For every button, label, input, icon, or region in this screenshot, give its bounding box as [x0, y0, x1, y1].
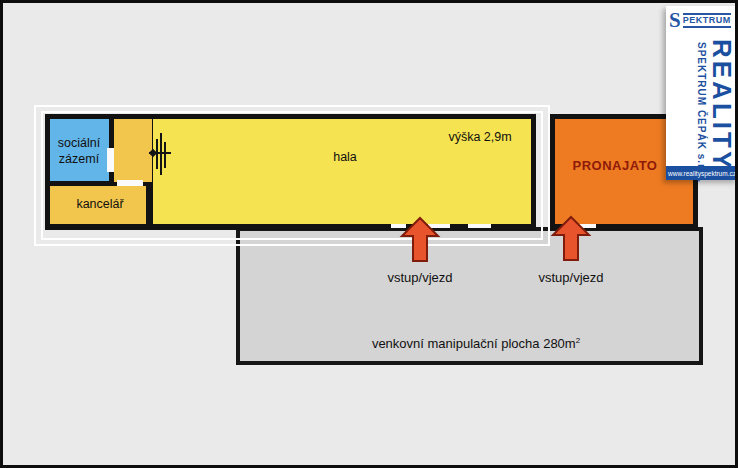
logo-company-text: SPEKTRUM ČEPÁK s.r.o.	[696, 42, 706, 183]
agency-logo-mini: S PEKTRUM	[669, 11, 731, 30]
entrance-label-1: vstup/vjezd	[387, 270, 452, 286]
logo-rule-bottom	[683, 26, 731, 28]
annotation-frame-inner	[41, 111, 543, 240]
entrance-label-2: vstup/vjezd	[538, 270, 603, 286]
outdoor-area-label-sup: 2	[576, 336, 580, 345]
logo-reality-text: REALITY	[709, 39, 735, 171]
outdoor-area-label: venkovní manipulační plocha 280m2	[372, 336, 580, 353]
logo-s-icon: S	[669, 11, 681, 30]
agency-logo: S PEKTRUM REALITY SPEKTRUM ČEPÁK s.r.o. …	[666, 6, 738, 180]
logo-mini-column: PEKTRUM	[683, 12, 731, 30]
entrance-arrow-icon	[549, 215, 593, 262]
floor-plan-image: venkovní manipulační plocha 280m2 sociál…	[0, 0, 738, 468]
logo-website-text: www.realityspektrum.cz	[668, 170, 736, 177]
logo-mini-word: PEKTRUM	[683, 16, 731, 26]
logo-website-strip: www.realityspektrum.cz	[666, 166, 738, 180]
outdoor-area-label-text: venkovní manipulační plocha 280m	[372, 336, 576, 351]
rented-label: PRONAJATO	[573, 158, 658, 174]
entrance-arrow-icon	[398, 216, 442, 263]
